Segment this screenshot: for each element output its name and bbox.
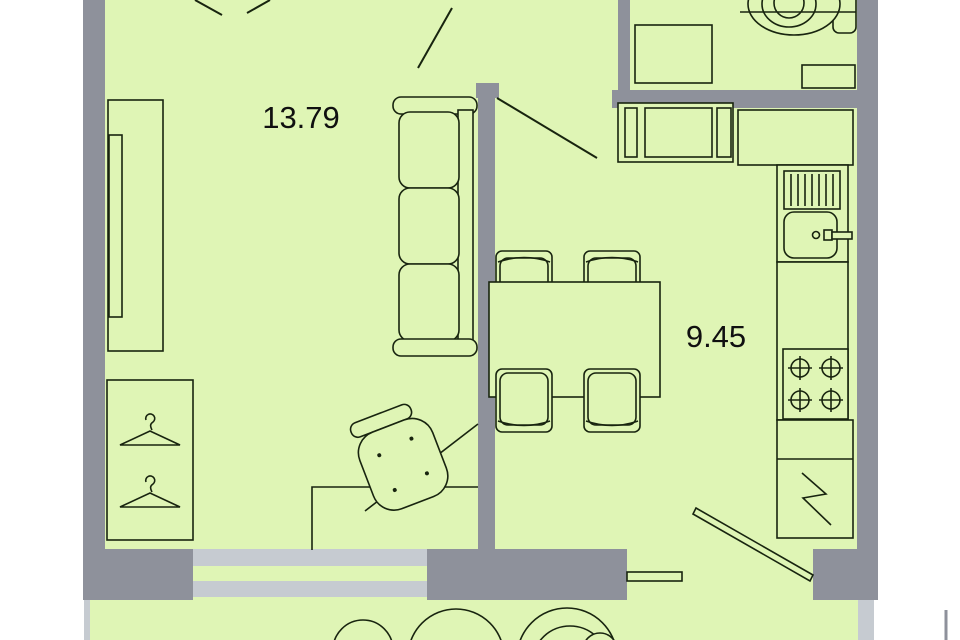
window-edge [193,597,427,600]
fridge [777,420,853,538]
wardrobe [107,380,193,540]
balcony-left-edge [84,600,90,640]
bottom-wall-left [83,549,193,600]
faucet-base [824,230,832,240]
partition-wall-cap [476,83,499,98]
chair-seat [588,373,636,425]
living-room-area-label: 13.79 [262,100,340,135]
left-wall [83,0,105,600]
kitchen-sink [777,165,852,262]
stove [783,349,848,419]
floor-plan-canvas: 13.79 9.45 [0,0,960,640]
cabinet-section [717,108,731,157]
bathroom-wall-vertical [618,0,630,100]
kitchen-cabinet [618,103,733,162]
window-outer-sill [193,549,427,566]
washing-machine [635,25,712,83]
tv-stand [108,100,163,351]
kitchen-area-label: 9.45 [686,319,746,354]
sofa-backrest [458,110,473,342]
kitchen-counter-top [738,110,853,165]
faucet-arm [832,232,852,239]
dining-chair [584,369,640,432]
sofa-cushion [399,264,459,341]
drainer-ridges [791,174,833,206]
tv-stand-panel [109,135,122,317]
cabinet-section [645,108,712,157]
wardrobe-body [107,380,193,540]
balcony-right-edge [858,600,874,640]
sofa [393,97,477,356]
sofa-armrest-bottom [393,339,477,356]
chair-seat [500,373,548,425]
bathroom-shelf [802,65,855,88]
stove-outline [783,349,848,419]
window [193,549,427,600]
window-gap [193,566,427,581]
sofa-cushion [399,112,459,188]
balcony-door-sill [627,572,682,581]
bottom-wall-middle [427,549,627,600]
cabinet-section [625,108,637,157]
bottom-wall-right-block [813,549,872,600]
right-wall [857,0,878,600]
sofa-cushion [399,188,459,264]
window-inner-sill [193,581,427,597]
dining-chair [496,369,552,432]
fridge-outline [777,420,853,538]
floor-plan: 13.79 9.45 [0,0,960,640]
